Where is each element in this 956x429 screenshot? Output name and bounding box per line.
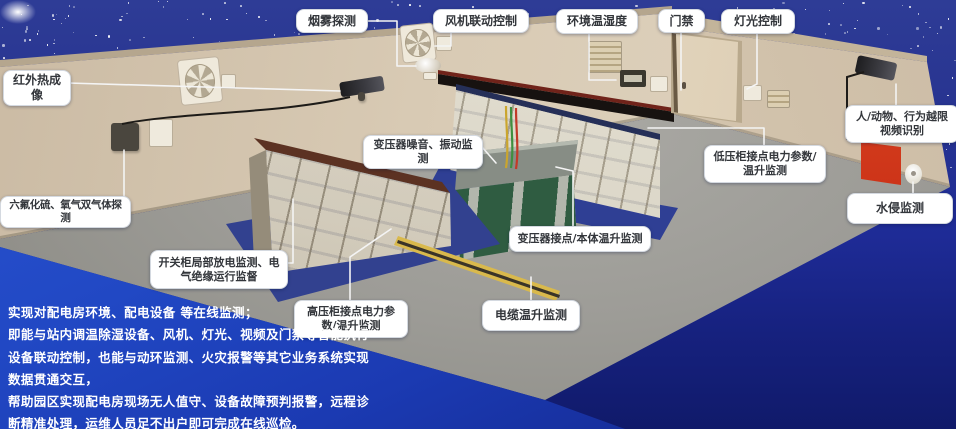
description-line: 帮助园区实现配电房现场无人值守、设备故障预判报警，远程诊 <box>8 391 380 413</box>
camera-cable <box>122 97 350 124</box>
leader-hv <box>350 229 391 300</box>
label-gas-detection[interactable]: 六氟化硫、氧气双气体探测 <box>0 196 131 228</box>
label-access-control[interactable]: 门禁 <box>658 9 705 33</box>
label-infrared-imaging[interactable]: 红外热成像 <box>3 70 71 106</box>
label-transformer-joint[interactable]: 变压器接点/本体温升监测 <box>509 226 651 252</box>
leader-light <box>747 34 757 89</box>
leader-smoke <box>368 21 416 66</box>
description-line: 实现对配电房环境、配电设备 等在线监测； <box>8 302 380 324</box>
leader-infrared <box>68 83 340 91</box>
description-line: 断精准处理，运维人员足不出户即可完成在线巡检。 <box>8 413 380 429</box>
label-water-monitoring[interactable]: 水侵监测 <box>847 193 953 224</box>
description-paragraph: 实现对配电房环境、配电设备 等在线监测； 即能与站内调温除湿设备、风机、灯光、视… <box>8 302 380 429</box>
distribution-room-scene: 烟雾探测 风机联动控制 环境温湿度 门禁 灯光控制 红外热成像 六氟化硫、氧气双… <box>0 0 956 429</box>
cable-red <box>516 108 517 169</box>
leader-transformer-joint <box>556 167 573 226</box>
label-lv-cabinet-monitoring[interactable]: 低压柜接点电力参数/温升监测 <box>704 145 826 183</box>
description-line: 数据贯通交互， <box>8 369 380 391</box>
label-smoke-detection[interactable]: 烟雾探测 <box>296 9 368 33</box>
leader-env <box>589 34 616 80</box>
cable-green <box>511 107 512 168</box>
label-switchgear-pd[interactable]: 开关柜局部放电监测、电气绝缘运行监督 <box>150 250 288 289</box>
leader-fan <box>435 33 451 46</box>
description-line: 即能与站内调温除湿设备、风机、灯光、视频及门禁等智能执行 <box>8 324 380 346</box>
leader-transformer-noise <box>482 147 496 163</box>
description-line: 设备联动控制，也能与动环监测、火灾报警等其它业务系统实现 <box>8 347 380 369</box>
label-fan-control[interactable]: 风机联动控制 <box>433 9 529 33</box>
label-video-recognition[interactable]: 人/动物、行为越限视频识别 <box>845 105 956 143</box>
label-cable-monitoring[interactable]: 电缆温升监测 <box>482 300 580 331</box>
leader-switchgear <box>288 199 293 263</box>
leader-lv <box>648 128 764 145</box>
label-env-temp-humidity[interactable]: 环境温湿度 <box>556 9 638 34</box>
label-light-control[interactable]: 灯光控制 <box>721 9 795 34</box>
label-transformer-noise[interactable]: 变压器噪音、振动监测 <box>363 135 483 169</box>
cable-yellow <box>506 106 507 168</box>
